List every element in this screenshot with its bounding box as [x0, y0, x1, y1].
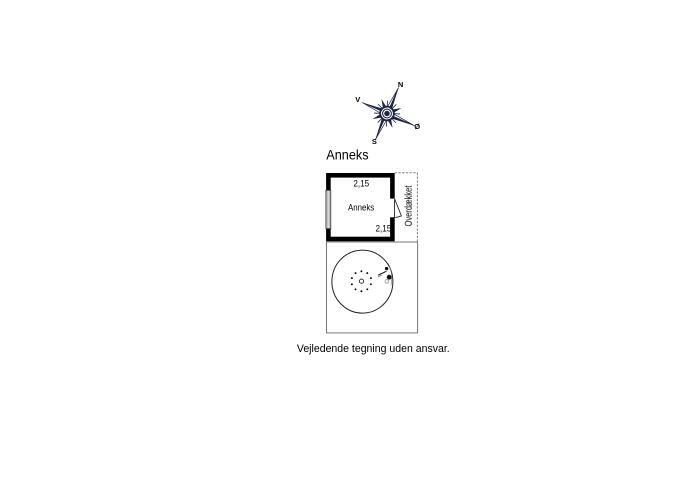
svg-text:Vejledende tegning uden ansvar: Vejledende tegning uden ansvar. — [297, 343, 450, 355]
svg-text:V: V — [355, 95, 360, 104]
svg-text:2,15: 2,15 — [353, 177, 369, 188]
svg-text:N: N — [398, 80, 403, 89]
svg-text:Anneks: Anneks — [348, 202, 374, 213]
svg-text:Overdækket: Overdækket — [404, 186, 415, 227]
svg-text:2,15: 2,15 — [376, 222, 392, 233]
svg-text:Anneks: Anneks — [326, 147, 368, 163]
svg-text:S: S — [372, 137, 377, 146]
svg-text:Ø: Ø — [414, 122, 420, 131]
